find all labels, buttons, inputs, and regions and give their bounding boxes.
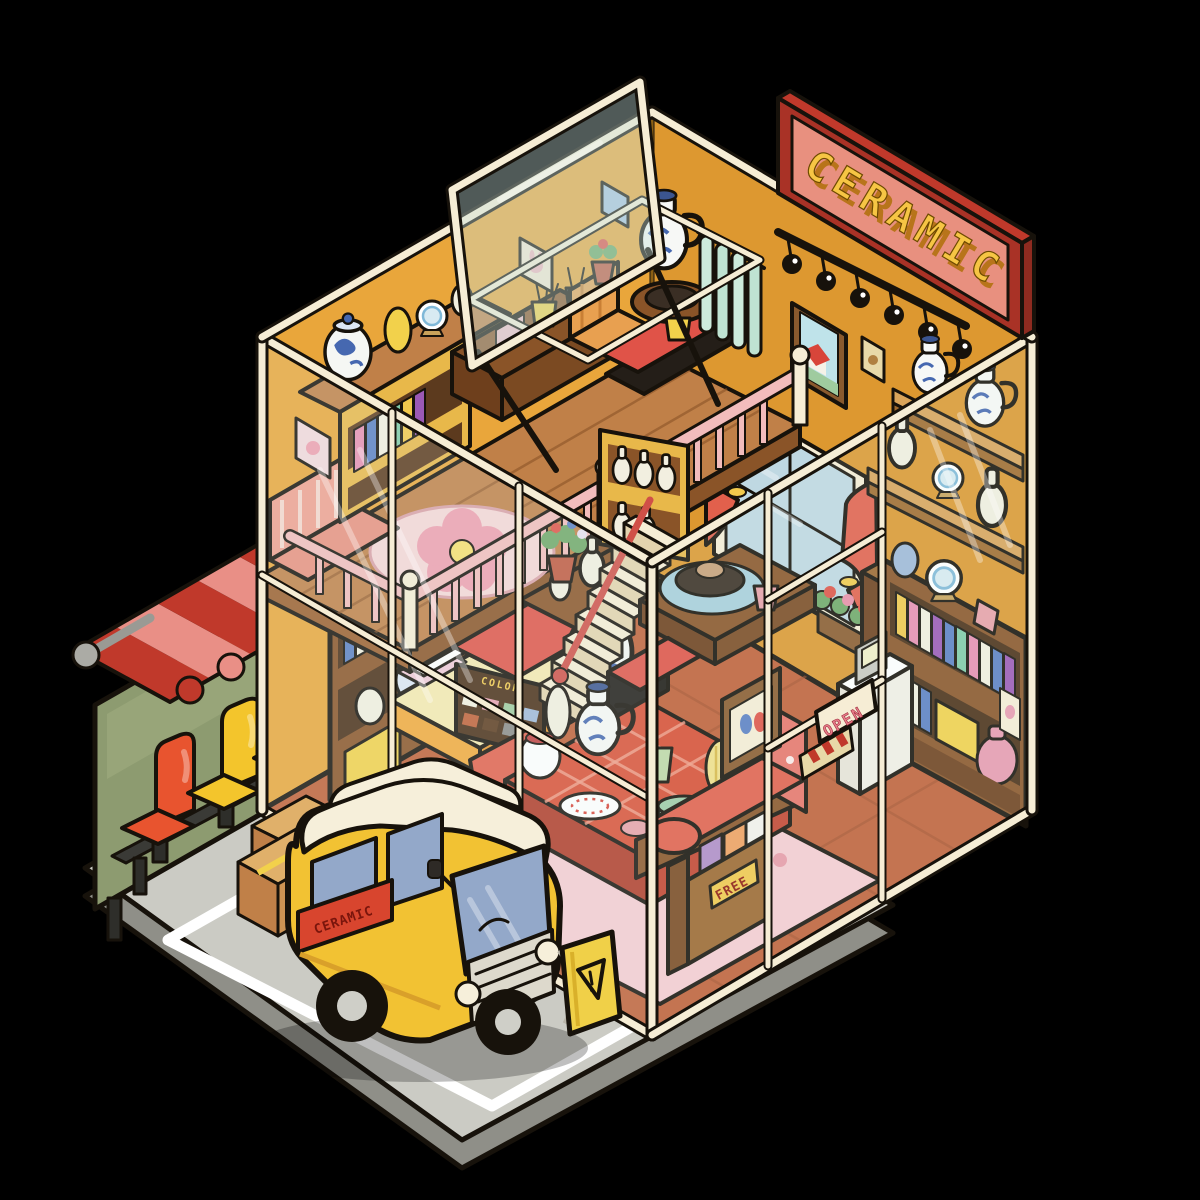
illustration-stage: RESERVE COLOR xyxy=(0,0,1200,1200)
headlight-left xyxy=(456,982,480,1006)
caution-sign xyxy=(562,932,620,1034)
awning-pole-cap xyxy=(73,642,99,668)
yellow-vase xyxy=(385,308,411,352)
headlight-right xyxy=(536,940,560,964)
ceramic-shop-illustration: RESERVE COLOR xyxy=(0,0,1200,1200)
van-mirror xyxy=(428,860,442,878)
